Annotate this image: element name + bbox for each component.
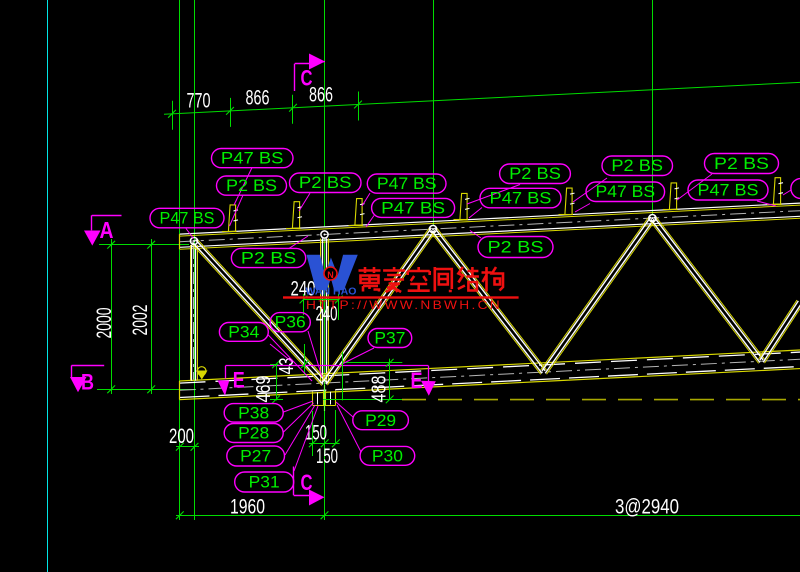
- svg-text:469: 469: [253, 376, 275, 403]
- svg-text:P47 BS: P47 BS: [377, 174, 437, 193]
- svg-text:P2 BS: P2 BS: [488, 238, 544, 257]
- svg-text:A: A: [100, 217, 114, 243]
- svg-text:B: B: [81, 370, 94, 395]
- svg-text:C: C: [301, 66, 313, 91]
- svg-text:P47 BS: P47 BS: [698, 181, 759, 200]
- svg-text:P29: P29: [365, 411, 396, 430]
- svg-text:3@2940: 3@2940: [615, 496, 679, 519]
- svg-text:P36: P36: [275, 313, 306, 332]
- svg-text:150: 150: [316, 445, 338, 468]
- svg-text:P34: P34: [228, 322, 259, 341]
- svg-text:P47 BS: P47 BS: [160, 209, 215, 228]
- svg-text:P27: P27: [240, 447, 271, 466]
- svg-text:P30: P30: [372, 446, 403, 465]
- svg-text:P2 BS: P2 BS: [714, 154, 769, 173]
- svg-text:HTTP://WWW.NBWH.CN: HTTP://WWW.NBWH.CN: [306, 298, 502, 312]
- svg-text:P2 BS: P2 BS: [241, 249, 296, 268]
- svg-text:P2 BS: P2 BS: [226, 176, 277, 195]
- svg-text:200: 200: [169, 425, 194, 448]
- svg-text:P47 BS: P47 BS: [381, 198, 445, 217]
- svg-text:N: N: [327, 270, 334, 280]
- svg-text:P2 BS: P2 BS: [611, 156, 663, 175]
- svg-text:43: 43: [276, 358, 298, 375]
- svg-text:866: 866: [309, 84, 333, 107]
- svg-text:P38: P38: [238, 403, 269, 422]
- svg-text:P47 BS: P47 BS: [596, 182, 656, 201]
- svg-text:P31: P31: [249, 473, 280, 492]
- svg-text:P47 BS: P47 BS: [490, 189, 552, 208]
- svg-text:2000: 2000: [93, 308, 116, 339]
- svg-text:770: 770: [187, 90, 211, 113]
- svg-text:P2 BS: P2 BS: [509, 164, 561, 183]
- svg-text:P37: P37: [374, 329, 405, 348]
- svg-text:C: C: [301, 470, 313, 495]
- svg-text:1960: 1960: [230, 496, 265, 519]
- svg-text:866: 866: [246, 87, 270, 110]
- svg-text:E: E: [233, 368, 245, 393]
- svg-text:P2 BS: P2 BS: [299, 173, 352, 192]
- svg-text:E: E: [411, 368, 423, 393]
- svg-text:P28: P28: [238, 424, 269, 443]
- svg-text:P47 BS: P47 BS: [221, 149, 284, 168]
- svg-text:488: 488: [369, 376, 391, 403]
- svg-text:2002: 2002: [129, 305, 152, 336]
- svg-text:WAN HAO: WAN HAO: [306, 286, 357, 298]
